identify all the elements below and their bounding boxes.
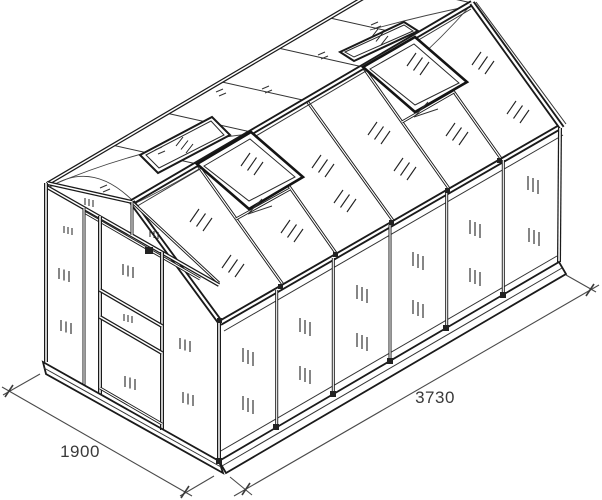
door-roller-bracket — [145, 247, 153, 254]
drawing-canvas: 1900 3730 — [0, 0, 602, 500]
dimension-length-label: 3730 — [415, 388, 455, 407]
greenhouse-technical-drawing: 1900 3730 — [0, 0, 602, 500]
dimension-width-label: 1900 — [60, 442, 100, 461]
